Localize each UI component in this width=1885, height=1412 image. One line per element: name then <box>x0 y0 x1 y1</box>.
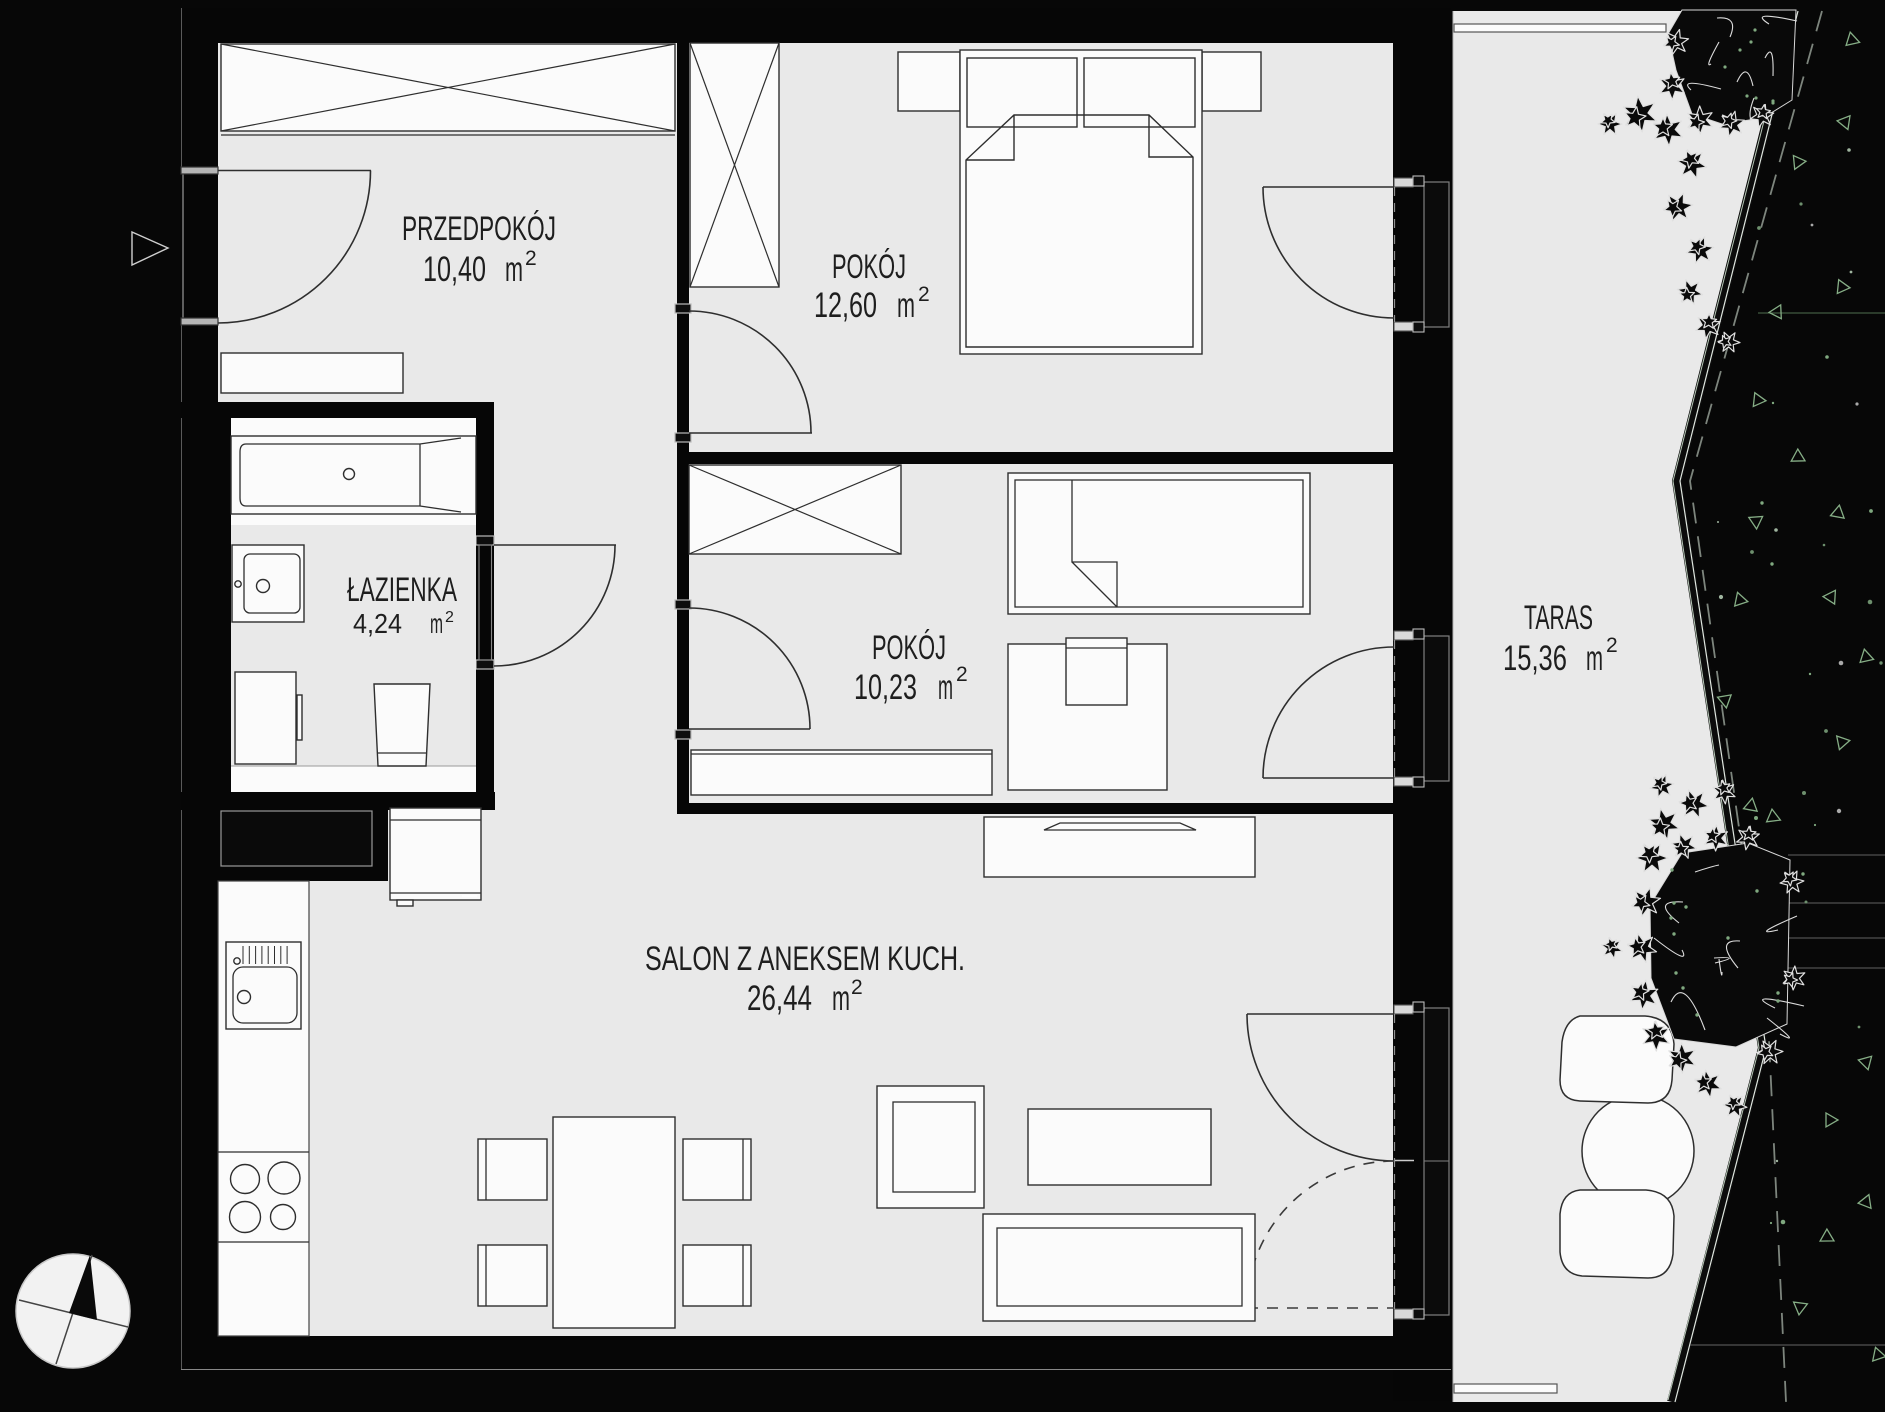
svg-text:2: 2 <box>918 283 930 306</box>
svg-text:m: m <box>505 250 523 289</box>
svg-text:POKÓJ: POKÓJ <box>832 248 906 286</box>
svg-text:10,23: 10,23 <box>854 668 917 707</box>
svg-text:m: m <box>938 668 953 707</box>
svg-text:TARAS: TARAS <box>1524 599 1593 637</box>
svg-text:2: 2 <box>1606 634 1618 657</box>
svg-text:PRZEDPOKÓJ: PRZEDPOKÓJ <box>402 210 556 248</box>
svg-text:ŁAZIENKA: ŁAZIENKA <box>347 571 457 609</box>
svg-text:2: 2 <box>525 247 537 270</box>
svg-text:2: 2 <box>956 663 968 686</box>
svg-text:12,60: 12,60 <box>814 286 877 325</box>
svg-text:m: m <box>897 286 915 325</box>
svg-text:POKÓJ: POKÓJ <box>872 629 946 667</box>
svg-text:m: m <box>832 979 850 1018</box>
svg-text:m: m <box>430 608 443 639</box>
svg-text:4,24: 4,24 <box>353 608 402 639</box>
svg-text:2: 2 <box>851 976 863 999</box>
svg-text:m: m <box>1586 639 1603 678</box>
svg-text:2: 2 <box>445 609 454 626</box>
svg-text:26,44: 26,44 <box>747 979 812 1018</box>
svg-text:SALON Z ANEKSEM KUCH.: SALON Z ANEKSEM KUCH. <box>645 940 965 978</box>
svg-text:10,40: 10,40 <box>423 250 486 289</box>
svg-text:15,36: 15,36 <box>1503 639 1567 678</box>
